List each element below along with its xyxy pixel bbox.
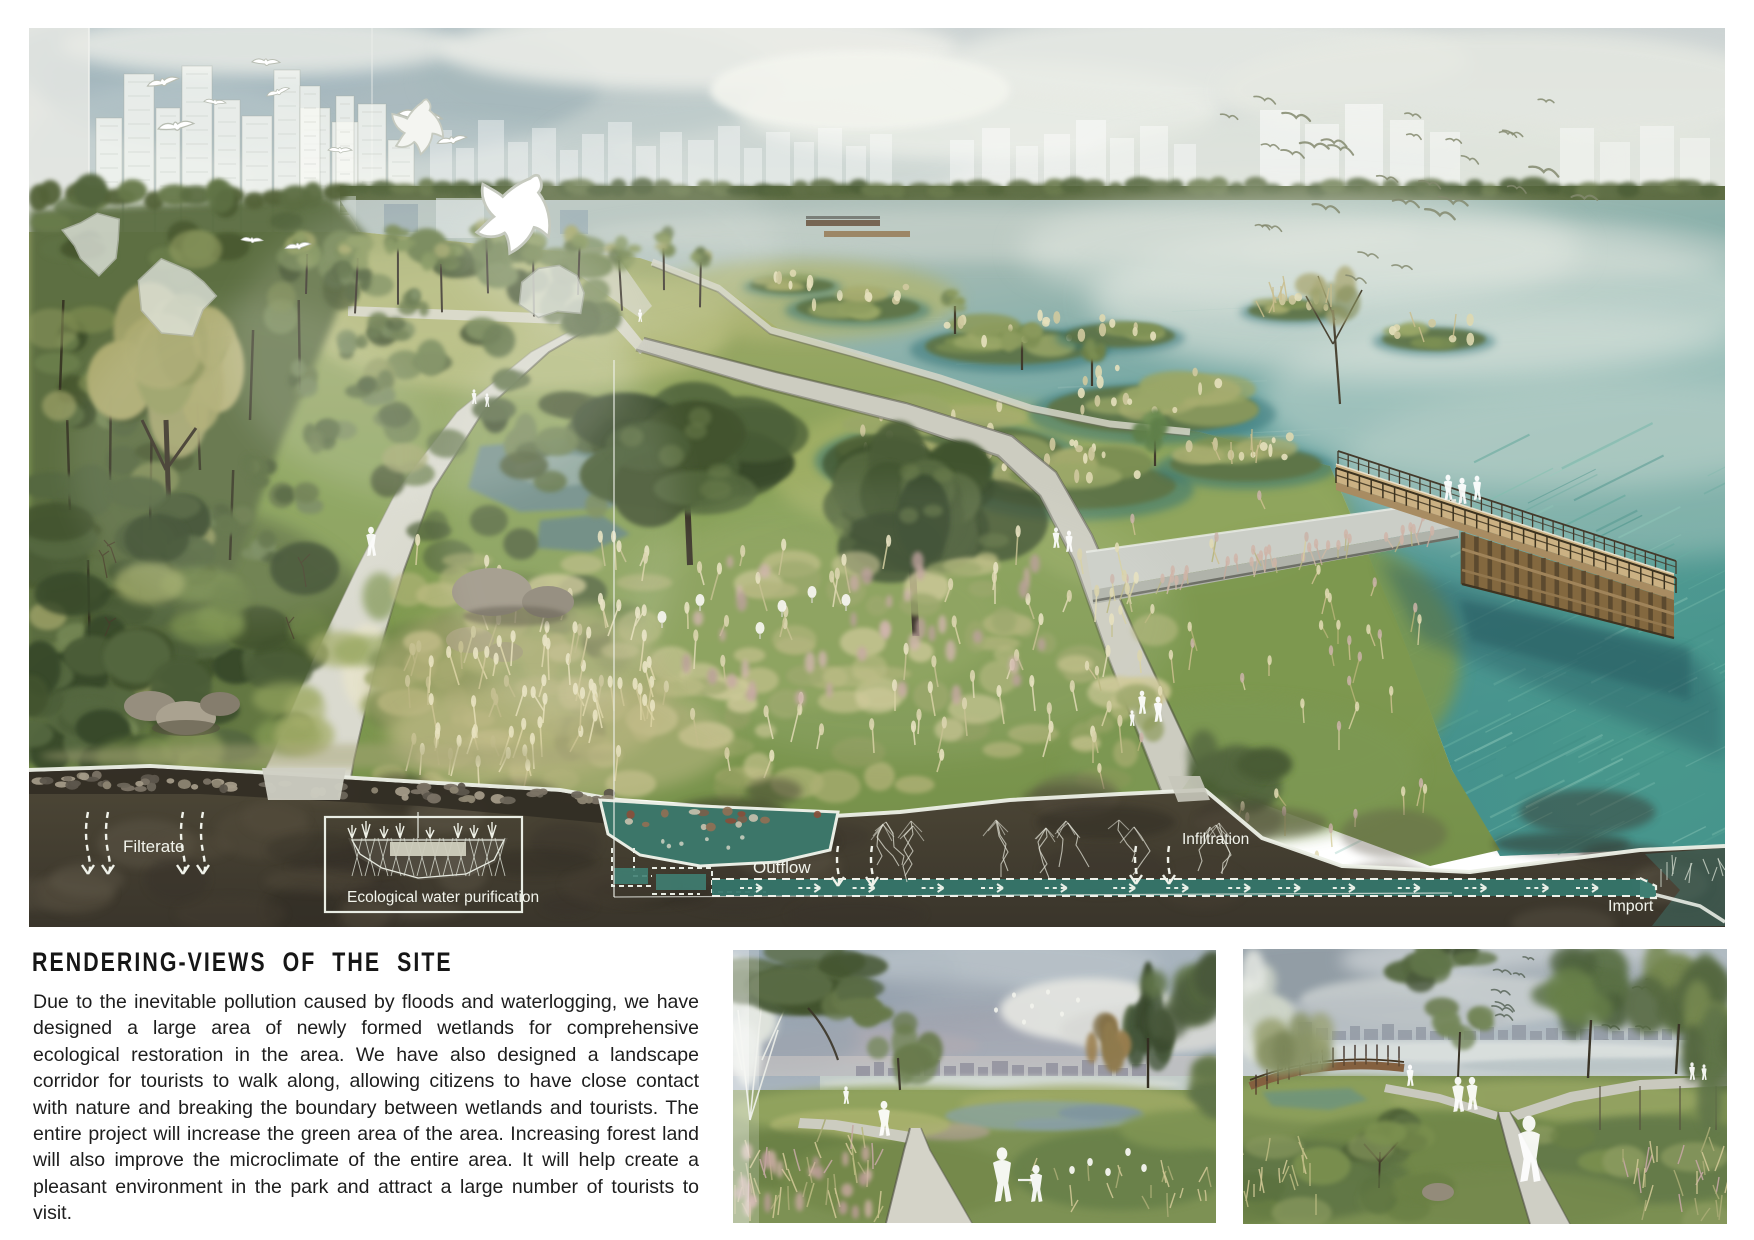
svg-text:Outflow: Outflow: [753, 858, 811, 877]
svg-text:Infiltration: Infiltration: [1182, 831, 1249, 848]
svg-text:Import: Import: [1608, 898, 1654, 915]
svg-text:Ecological water purification: Ecological water purification: [347, 889, 539, 906]
svg-text:Filterate: Filterate: [123, 837, 184, 856]
